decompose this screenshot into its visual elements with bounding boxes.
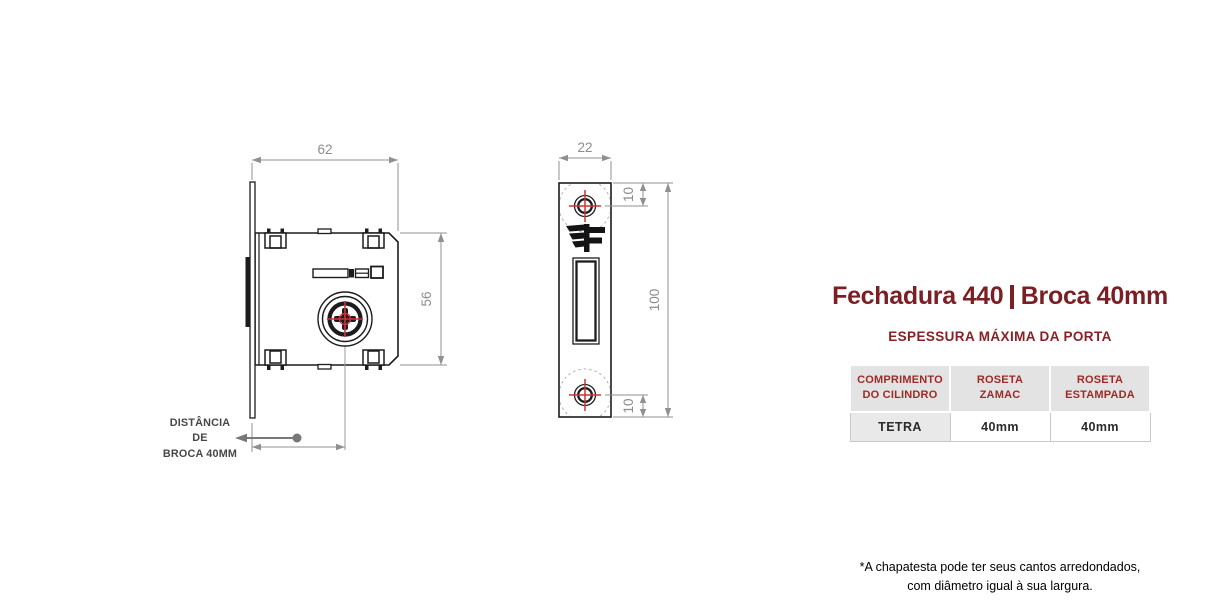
title-spec: Broca 40mm <box>1021 282 1168 311</box>
subtitle: ESPESSURA MÁXIMA DA PORTA <box>818 329 1182 344</box>
mounting-tab-top-right <box>363 229 384 249</box>
faceplate-drawing: 22 10 100 10 <box>520 130 695 440</box>
dimension-label-22: 22 <box>577 140 592 155</box>
footnote: *A chapatesta pode ter seus cantos arred… <box>818 558 1182 596</box>
dimension-width <box>252 157 398 231</box>
backset-label: DISTÂNCIA DE BROCA 40MM <box>150 416 250 462</box>
dimension-label-62: 62 <box>317 142 332 157</box>
mounting-tab-bottom-left <box>265 350 286 370</box>
cell-estampada: 40mm <box>1050 412 1150 442</box>
dimension-hole-top <box>605 183 673 206</box>
spec-table: COMPRIMENTO DO CILINDRO ROSETA ZAMAC ROS… <box>849 364 1151 442</box>
title-product: Fechadura 440 <box>832 282 1003 311</box>
dimension-label-10-top: 10 <box>621 187 636 202</box>
latch-bolt <box>246 257 251 327</box>
page-title: Fechadura 440 Broca 40mm <box>818 282 1182 311</box>
title-divider <box>1010 285 1014 309</box>
spec-sheet: 62 56 DISTÂNCIA DE BROCA 40MM <box>0 0 1220 600</box>
mounting-tab-top-left <box>265 229 286 249</box>
latch-opening <box>573 258 599 344</box>
cell-cilindro: TETRA <box>850 412 950 442</box>
col-header-estampada: ROSETA ESTAMPADA <box>1050 365 1150 412</box>
table-header-row: COMPRIMENTO DO CILINDRO ROSETA ZAMAC ROS… <box>850 365 1150 412</box>
mounting-tab-bottom-right <box>363 350 384 370</box>
dimension-plate-height <box>613 183 673 417</box>
dimension-label-100: 100 <box>647 289 662 312</box>
dimension-plate-width <box>559 155 611 180</box>
table-row: TETRA 40mm 40mm <box>850 412 1150 442</box>
cell-zamac: 40mm <box>950 412 1050 442</box>
dimension-label-10-bottom: 10 <box>621 398 636 413</box>
info-panel: Fechadura 440 Broca 40mm ESPESSURA MÁXIM… <box>818 282 1182 442</box>
dimension-label-56: 56 <box>419 291 434 306</box>
faceplate-edge <box>246 182 256 418</box>
col-header-zamac: ROSETA ZAMAC <box>950 365 1050 412</box>
bottom-notch <box>318 365 331 370</box>
top-notch <box>318 229 331 234</box>
col-header-cilindro: COMPRIMENTO DO CILINDRO <box>850 365 950 412</box>
